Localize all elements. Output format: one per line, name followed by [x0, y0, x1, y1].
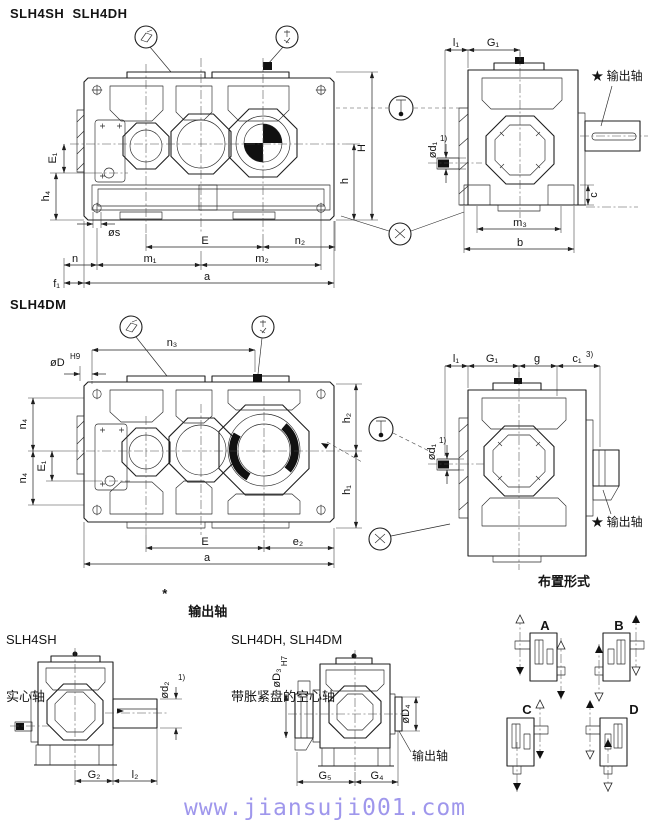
dim-l1: l₁ [453, 353, 459, 365]
legend-dm-models: SLH4DH, SLH4DM [231, 630, 342, 649]
dim-D4: øD₄ [400, 704, 412, 724]
corner-bolt-holes [92, 85, 326, 213]
dim-b: b [517, 237, 523, 249]
dim-n2: n₂ [295, 235, 305, 247]
dim-d1: ød₁ [426, 443, 438, 460]
dim-H: H [356, 144, 368, 152]
input-shaft [437, 158, 459, 169]
breather-balloon [263, 26, 298, 70]
dim-D-tolerance: H9 [70, 352, 81, 361]
oil-drain-icon [341, 212, 464, 245]
dim-E1: E₁ [47, 152, 59, 163]
solid-output-shaft [113, 699, 157, 728]
dim-os: øs [108, 227, 121, 239]
oil-fill-balloon [120, 316, 167, 376]
dim-d2: ød₂ [159, 681, 171, 698]
dim-G5: G₅ [319, 770, 332, 782]
dim-n4-lower: n₄ [17, 472, 29, 483]
end-view-1-dimensions: l₁ G₁ ★ 输出轴 ød₁ 1) c m₃ b [336, 37, 643, 253]
dim-D: øD [50, 357, 65, 369]
dim-c1: c₁ [572, 353, 582, 365]
legend-star: * [162, 586, 167, 601]
dim-G4: G₄ [370, 770, 384, 782]
legend-output-shaft: 输出轴 [188, 604, 227, 619]
side-view-slh4dm [70, 316, 362, 540]
dim-m2: m₂ [255, 253, 268, 265]
output-shaft-label: ★ 输出轴 [591, 68, 642, 83]
dim-e2: e₂ [293, 536, 303, 548]
arrangement-d-label: D [629, 702, 638, 717]
dim-f1: f₁ [53, 278, 60, 290]
dim-E: E [201, 536, 208, 548]
end-view-slh4dm [428, 372, 619, 570]
footnote-1: 1) [440, 134, 447, 143]
section-title-slh4dm: SLH4DM [10, 297, 66, 312]
dim-h: h [339, 178, 351, 184]
legend-sh-model: SLH4SH [6, 630, 57, 649]
dim-l1: l₁ [453, 37, 459, 49]
footnote-1: 1) [439, 436, 446, 445]
side-view-slh4sh [70, 26, 346, 233]
legend-sh-type: 实心轴 [6, 687, 57, 706]
legend-dm-type: 带胀紧盘的空心轴 [231, 687, 342, 706]
dim-E: E [201, 235, 208, 247]
inspection-ports [122, 405, 309, 495]
dim-n: n [72, 253, 78, 265]
dim-E1: E₁ [36, 460, 48, 471]
dim-G2: G₂ [88, 769, 101, 781]
arrangement-section-title: 布置形式 [538, 571, 590, 590]
dim-l2: l₂ [132, 769, 139, 781]
corner-bolt-holes [93, 389, 325, 515]
dim-G1: G₁ [486, 353, 499, 365]
output-shaft-block [593, 450, 619, 500]
arrangement-a-label: A [540, 618, 550, 633]
watermark-url: www.jiansuji001.com [0, 795, 650, 821]
dim-n3: n₃ [167, 337, 178, 349]
side-view-2-dimensions: n₃ øD H9 n₄ n₄ E₁ h₂ h₁ E e₂ a [17, 337, 362, 568]
dim-h1: h₁ [341, 485, 353, 495]
dim-g: g [534, 353, 540, 365]
arrangement-c-label: C [522, 702, 532, 717]
dim-a: a [204, 271, 211, 283]
dim-m3: m₃ [513, 217, 527, 229]
input-shaft [437, 459, 459, 470]
dim-h4: h₄ [40, 190, 52, 201]
dim-h2: h₂ [341, 413, 353, 423]
page-title-models: SLH4SH SLH4DH [10, 6, 128, 21]
arrangement-b-label: B [614, 618, 623, 633]
dim-d1: ød₁ [427, 141, 439, 158]
dim-a: a [204, 552, 211, 564]
footnote-1: 1) [178, 673, 185, 682]
dim-G1: G₁ [487, 37, 500, 49]
footnote-3: 3) [586, 350, 593, 359]
arrangement-d [586, 700, 627, 792]
arrangement-diagrams: A B C D [507, 615, 644, 792]
dim-m1: m₁ [144, 253, 157, 265]
oil-fill-balloon [135, 26, 171, 72]
dim-c: c [588, 192, 600, 198]
output-shaft-label: 输出轴 [412, 748, 448, 763]
side-view-1-dimensions: E₁ h₄ h H øs E n₂ n m₁ m₂ f₁ a [40, 72, 378, 290]
oil-drain-icon [369, 524, 450, 550]
oil-level-icon [336, 96, 459, 120]
breather-balloon [252, 316, 274, 382]
dim-n4-upper: n₄ [17, 418, 29, 429]
output-shaft-label: ★ 输出轴 [591, 514, 642, 529]
catalog-page: E₁ h₄ h H øs E n₂ n m₁ m₂ f₁ a l₁ [0, 0, 650, 835]
